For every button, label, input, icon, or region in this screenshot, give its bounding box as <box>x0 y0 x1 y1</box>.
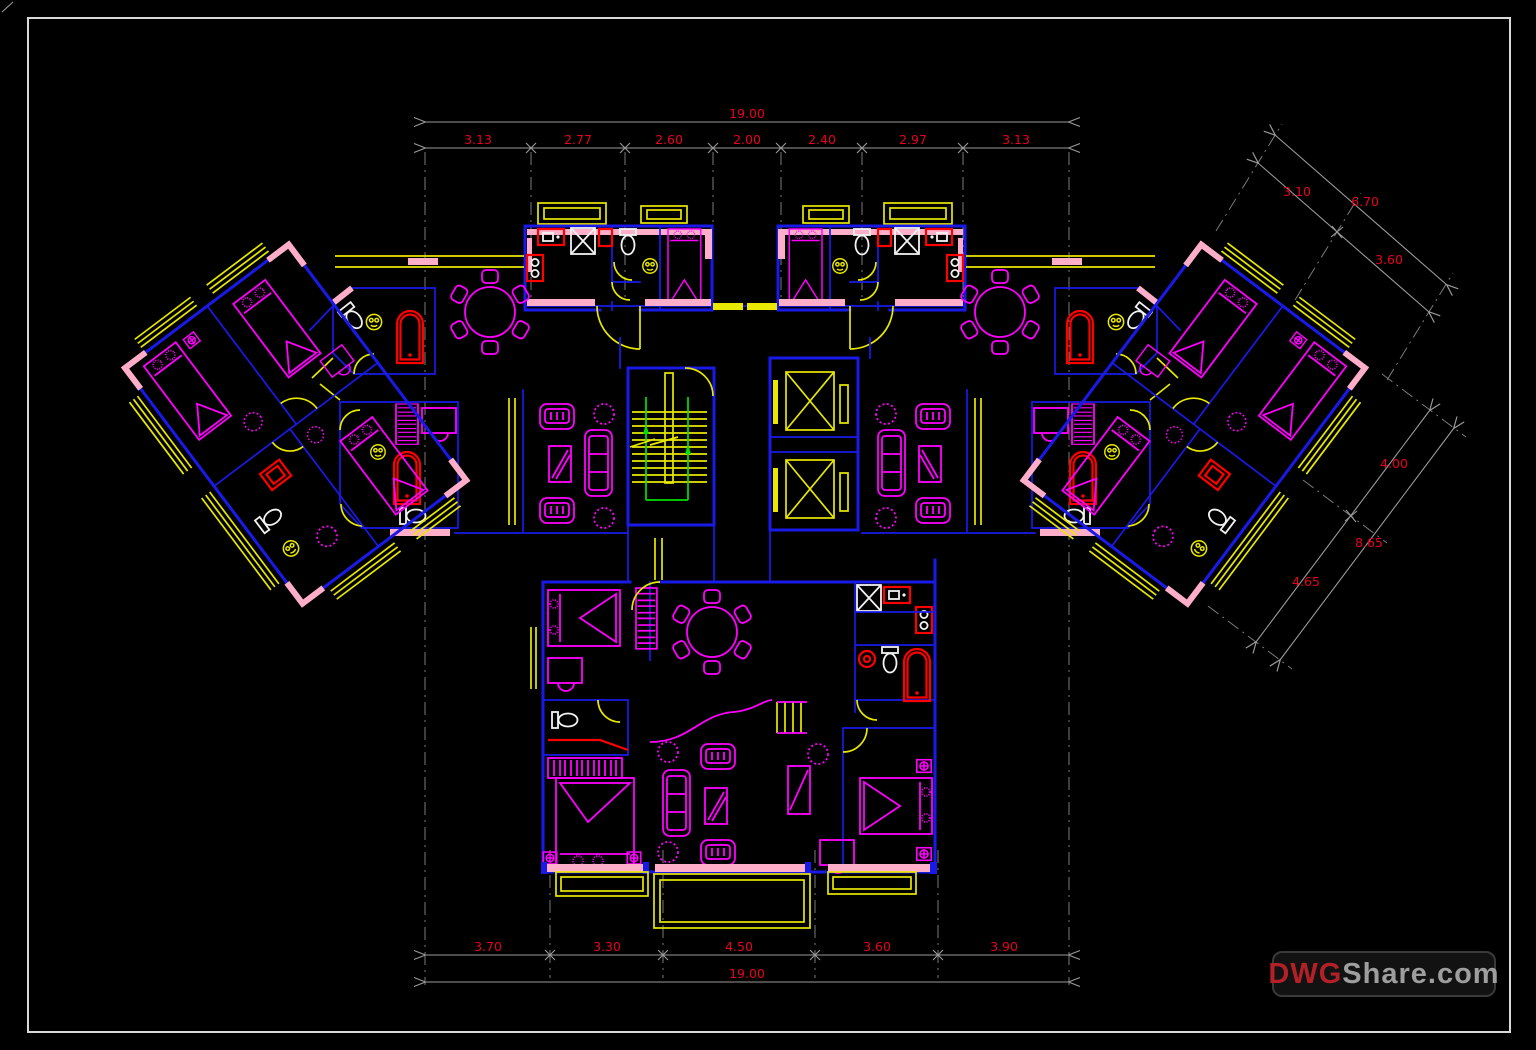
elevator-shafts <box>770 358 858 530</box>
floor-plan-canvas: 19.00 3.13 2.77 2.60 2.00 2.40 2.97 3.13… <box>0 0 1536 1050</box>
cad-drawing-stage: 19.00 3.13 2.77 2.60 2.00 2.40 2.97 3.13… <box>0 0 1536 1050</box>
top-right-unit <box>778 203 965 310</box>
dim-bottom-overall: 19.00 <box>729 966 765 981</box>
stair-core <box>628 368 770 582</box>
balconies <box>556 872 916 928</box>
dim-top-seg-1: 2.77 <box>564 132 592 147</box>
entry-door-arc <box>597 306 640 349</box>
dim-right-upper-seg-1: 3.60 <box>1375 252 1403 267</box>
dimension-ticks <box>1345 510 1357 522</box>
dim-bottom-seg-1: 3.30 <box>593 939 621 954</box>
watermark-badge: DWGShare.com <box>1272 951 1496 997</box>
dim-bottom-seg-0: 3.70 <box>474 939 502 954</box>
curved-partition <box>650 700 772 742</box>
left-wing <box>101 231 476 627</box>
dim-right-lower-overall: 8.65 <box>1355 535 1383 550</box>
stair-break-line <box>630 437 678 447</box>
double-door-leaf <box>747 303 777 310</box>
corner-tick <box>2 2 13 12</box>
stair-treads <box>632 412 707 482</box>
corridor-walls <box>390 529 1100 536</box>
dim-bottom-seg-4: 3.90 <box>990 939 1018 954</box>
dim-top-overall: 19.00 <box>729 106 765 121</box>
stair-stringer <box>665 373 673 483</box>
watermark-suffix: Share.com <box>1342 958 1499 991</box>
dim-top-seg-4: 2.40 <box>808 132 836 147</box>
elevator-door <box>773 380 778 424</box>
entry-door-arc <box>850 306 893 349</box>
dimension-chain-right-upper: 3.10 6.70 3.60 <box>1258 135 1447 312</box>
double-door-leaf <box>713 303 743 310</box>
dim-bottom-seg-2: 4.50 <box>725 939 753 954</box>
dimension-chain-top: 19.00 3.13 2.77 2.60 2.00 2.40 2.97 3.13 <box>425 106 1069 153</box>
watermark-prefix: DWG <box>1268 958 1342 991</box>
dimension-ticks <box>1331 226 1343 238</box>
stair-direction-arrows <box>643 424 691 454</box>
right-wing <box>1014 231 1389 627</box>
dim-top-seg-3: 2.00 <box>733 132 761 147</box>
bottom-unit <box>531 560 937 874</box>
dim-right-lower-seg-0: 4.00 <box>1380 456 1408 471</box>
stair-door-arc <box>685 368 713 396</box>
dim-top-seg-2: 2.60 <box>655 132 683 147</box>
dim-top-seg-5: 2.97 <box>899 132 927 147</box>
dimension-chain-right-lower: 4.00 8.65 4.65 <box>1256 410 1454 660</box>
dim-bottom-seg-3: 3.60 <box>863 939 891 954</box>
dim-right-lower-seg-1: 4.65 <box>1292 574 1320 589</box>
dimension-chain-bottom: 3.70 3.30 4.50 3.60 3.90 19.00 <box>425 939 1069 982</box>
dim-top-seg-6: 3.13 <box>1002 132 1030 147</box>
dim-right-upper-overall: 6.70 <box>1351 194 1379 209</box>
dim-top-seg-0: 3.13 <box>464 132 492 147</box>
top-left-unit <box>525 203 712 310</box>
elevator-door <box>773 468 778 512</box>
dim-right-upper-seg-0: 3.10 <box>1283 184 1311 199</box>
